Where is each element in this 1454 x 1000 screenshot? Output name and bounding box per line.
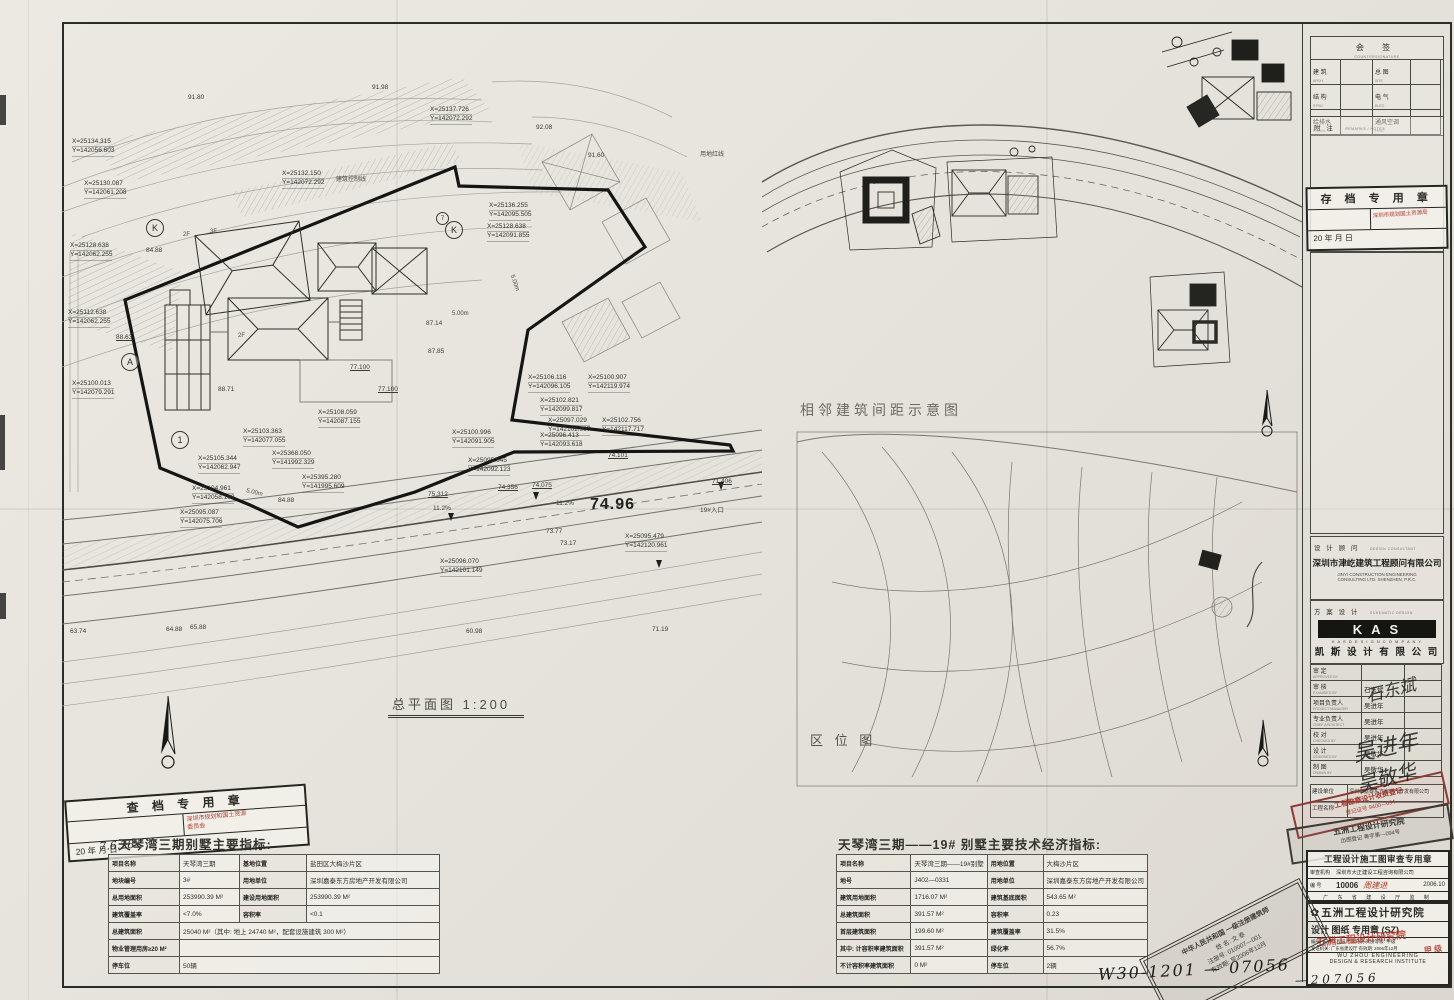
table-cell: 56.7% <box>1043 940 1148 957</box>
signature-role-cell: 项目负责人PROJECT MANAGER <box>1311 697 1362 713</box>
scan-artifact <box>0 415 5 470</box>
table-cell: 其中: 计容积率建筑面积 <box>837 940 911 957</box>
table-cell <box>180 940 440 957</box>
table-cell: 项目名称 <box>109 855 180 872</box>
wuzhou-en2: DESIGN & RESEARCH INSTITUTE <box>1308 959 1448 965</box>
spacing-diagram-label: 相邻建筑间距示意图 <box>800 400 962 420</box>
table-cell: 50辆 <box>180 957 440 974</box>
table-cell: 199.60 M² <box>911 923 987 940</box>
table-row: 总建筑面积25040 M²（其中: 地上 24740 M²，配套设施建筑 300… <box>109 923 440 940</box>
north-arrow <box>150 692 186 778</box>
scan-artifact <box>0 95 6 125</box>
table-cell: 建筑基底面积 <box>987 889 1043 906</box>
archive-stamp-date: 20 年 月 日 <box>1308 229 1446 246</box>
signature-role-cell: 审 定APPROVED BY <box>1311 665 1362 681</box>
review-handwritten: 周建进 <box>1363 880 1387 891</box>
scheme-header: 方 案 设 计 <box>1311 607 1362 618</box>
table-cell: 地块编号 <box>109 872 180 889</box>
north-arrow <box>1248 718 1278 770</box>
design-consultant-box: 设 计 顾 问 DESIGN CONSULTANT 深圳市津屹建筑工程顾问有限公… <box>1310 536 1444 600</box>
table-row: 地块编号3#用地单位深圳嘉泰东方房地产开发有限公司 <box>109 872 440 889</box>
table-cell: 总建筑面积 <box>109 923 180 940</box>
table-cell: <7.0% <box>180 906 240 923</box>
table-cell: 总建筑面积 <box>837 906 911 923</box>
archive-stamp-red: 深圳市规划国土资源局 <box>1370 207 1430 231</box>
signature-role-cell: 专业负责人CHIEF ARCHITECT <box>1311 713 1362 729</box>
review-no: 10006 <box>1336 881 1358 890</box>
table-cell: 3# <box>180 872 240 889</box>
table-cell: 用地单位 <box>239 872 306 889</box>
review-footer: 广 东 省 建 设 厅 监 制 <box>1308 892 1448 901</box>
table-row: 物业管理用房≥20 M² <box>109 940 440 957</box>
table-row: 总用地面积253990.39 M²建设用地面积253990.39 M² <box>109 889 440 906</box>
check-stamp-red1: 深圳市规划和国土资源 <box>186 811 246 823</box>
review-no-label: 编 号 <box>1308 882 1336 889</box>
review-stamp-title: 工程设计施工图审查专用章 <box>1308 852 1448 867</box>
table-row: 首层建筑面积199.60 M²建筑覆盖率31.5% <box>837 923 1148 940</box>
table-cell: 0.23 <box>1043 906 1148 923</box>
check-stamp-red2: 委员会 <box>187 824 206 832</box>
table-cell: 大梅沙片区 <box>1043 855 1148 872</box>
table-cell: 容积率 <box>987 906 1043 923</box>
consultant-header: 设 计 顾 问 <box>1311 543 1362 554</box>
table-cell: 用地单位 <box>987 872 1043 889</box>
signature-role-cell: 审 核EXAMINED BY <box>1311 681 1362 697</box>
review-stamp: 工程设计施工图审查专用章 审查机构 深圳市大正建设工程咨询有限公司 编 号 10… <box>1306 850 1450 902</box>
table-row: 建筑覆盖率<7.0%容积率<0.1 <box>109 906 440 923</box>
table-cell: 物业管理用房≥20 M² <box>109 940 180 957</box>
table-cell: 建筑覆盖率 <box>987 923 1043 940</box>
countersign-signature-cell <box>1411 85 1441 110</box>
countersign-signature-cell <box>1341 85 1373 110</box>
table-cell: 绿化率 <box>987 940 1043 957</box>
villa-indicators-table: 项目名称天琴湾三期基地位置盐田区大梅沙片区地块编号3#用地单位深圳嘉泰东方房地产… <box>108 854 440 974</box>
table-row: 项目名称天琴湾三期——19#别墅用地位置大梅沙片区 <box>837 855 1148 872</box>
scheme-design-box: 方 案 设 计 SCHEMATIC DESIGN KAS K A S D E S… <box>1310 600 1444 664</box>
table-cell: 盐田区大梅沙片区 <box>306 855 439 872</box>
notes-subtitle: REMARKS / NOTES <box>1342 127 1388 131</box>
table-cell: 深圳嘉泰东方房地产开发有限公司 <box>306 872 439 889</box>
sheet-edge-line <box>28 0 29 1000</box>
table-cell: 建筑覆盖率 <box>109 906 180 923</box>
countersign-discipline-cell: 总 图SITE <box>1373 60 1411 85</box>
table-cell: 25040 M²（其中: 地上 24740 M²，配套设施建筑 300 M²） <box>180 923 440 940</box>
table-cell: 不计容积率建筑面积 <box>837 957 911 974</box>
table-cell: 容积率 <box>239 906 306 923</box>
kas-company-cn: 凯 斯 设 计 有 限 公 司 <box>1311 644 1443 658</box>
countersign-discipline-cell: 电 气ELEC. <box>1373 85 1411 110</box>
table-row: 总建筑面积391.57 M²容积率0.23 <box>837 906 1148 923</box>
table-cell: 391.57 M² <box>911 940 987 957</box>
review-agency: 深圳市大正建设工程咨询有限公司 <box>1336 869 1448 876</box>
review-agency-label: 审查机构 <box>1308 869 1336 876</box>
table-cell: J402—0331 <box>911 872 987 889</box>
table-cell: 总用地面积 <box>109 889 180 906</box>
villa19-indicators-table: 项目名称天琴湾三期——19#别墅用地位置大梅沙片区地号J402—0331用地单位… <box>836 854 1148 974</box>
table-cell: 253990.39 M² <box>180 889 240 906</box>
countersign-signature-cell <box>1341 60 1373 85</box>
location-map-label: 区 位 图 <box>810 730 876 749</box>
table-cell: 1716.07 M² <box>911 889 987 906</box>
signature-row: 专业负责人CHIEF ARCHITECT吴进年 <box>1311 713 1442 729</box>
table-cell: 地号 <box>837 872 911 889</box>
scheme-header-sub: SCHEMATIC DESIGN <box>1367 611 1416 615</box>
scan-artifact <box>0 593 6 619</box>
table-row: 项目名称天琴湾三期基地位置盐田区大梅沙片区 <box>109 855 440 872</box>
countersign-discipline-cell: 建 筑ARCH. <box>1311 60 1341 85</box>
table-row: 建筑用地面积1716.07 M²建筑基底面积543.65 M² <box>837 889 1148 906</box>
table-cell: 首层建筑面积 <box>837 923 911 940</box>
table-cell: 用地位置 <box>987 855 1043 872</box>
north-arrow <box>1252 388 1282 440</box>
kas-logo: KAS <box>1318 620 1436 638</box>
table-cell: 深圳嘉泰东方房地产开发有限公司 <box>1043 872 1148 889</box>
table-cell: 停车位 <box>987 957 1043 974</box>
notes-title: 附 注 <box>1311 123 1338 134</box>
titleblock-empty-box <box>1310 252 1444 534</box>
table-cell: 253990.39 M² <box>306 889 439 906</box>
table-row: 其中: 计容积率建筑面积391.57 M²绿化率56.7% <box>837 940 1148 957</box>
table-cell: 建筑用地面积 <box>837 889 911 906</box>
countersign-title: 会 签 <box>1353 41 1401 54</box>
table-cell: 天琴湾三期 <box>180 855 240 872</box>
archive-stamp: 存 档 专 用 章 深圳市规划国土资源局 20 年 月 日 <box>1305 185 1448 251</box>
countersign-discipline-cell: 结 构STRU. <box>1311 85 1341 110</box>
table-cell: 31.5% <box>1043 923 1148 940</box>
table-cell: 基地位置 <box>239 855 306 872</box>
wuzhou-handwritten-no: — 2 0 7 0 5 6 <box>1295 971 1376 988</box>
scale-label: 总平面图 1:200 <box>388 694 524 718</box>
table-cell: 543.65 M² <box>1043 889 1148 906</box>
consultant-company-en2: CONSULTING LTD. SHENZHEN, P.R.C. <box>1311 577 1443 582</box>
table-cell: 0 M² <box>911 957 987 974</box>
review-date: 2006.10 <box>1423 882 1448 888</box>
countersign-signature-cell <box>1411 60 1441 85</box>
table-cell: <0.1 <box>306 906 439 923</box>
table-row: 地号J402—0331用地单位深圳嘉泰东方房地产开发有限公司 <box>837 872 1148 889</box>
table-row: 停车位50辆 <box>109 957 440 974</box>
consultant-company-cn: 深圳市津屹建筑工程顾问有限公司 <box>1311 557 1443 569</box>
consultant-header-sub: DESIGN CONSULTANT <box>1367 547 1419 551</box>
wuzhou-title: 五洲工程设计研究院 <box>1321 905 1425 920</box>
left-table-title: 天琴湾三期别墅主要指标: <box>118 834 272 853</box>
signature-blank-cell <box>1405 697 1442 713</box>
table-cell: 建设用地面积 <box>239 889 306 906</box>
table-cell: 天琴湾三期——19#别墅 <box>911 855 987 872</box>
table-cell: 项目名称 <box>837 855 911 872</box>
table-cell: 停车位 <box>109 957 180 974</box>
right-table-title: 天琴湾三期——19# 别墅主要技术经济指标: <box>838 834 1101 853</box>
table-cell: 391.57 M² <box>911 906 987 923</box>
drawing-sheet: { "sheet": { "scale_label": "总平面图 1:200"… <box>0 0 1454 1000</box>
